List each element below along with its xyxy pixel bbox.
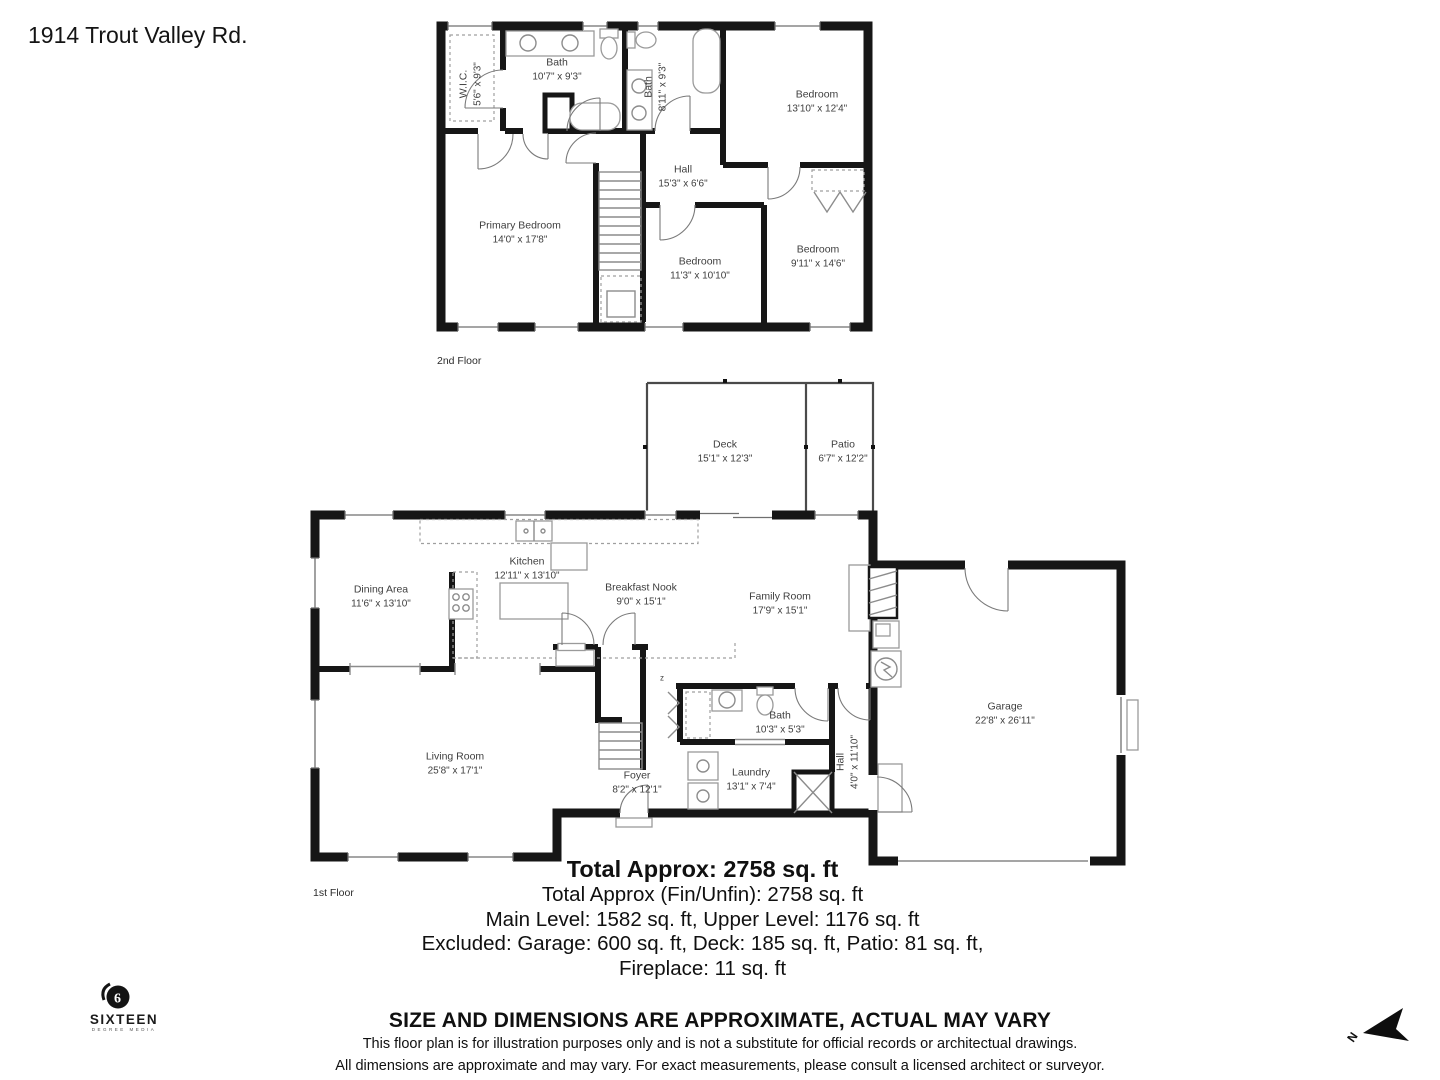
page-title: 1914 Trout Valley Rd.	[28, 22, 247, 49]
switch-symbol: z	[660, 674, 664, 683]
bath-laundry-fixtures	[668, 687, 902, 813]
room-label-dining: Dining Area11'6" x 13'10"	[351, 584, 411, 611]
room-label-wic: W.I.C.5'6" x 9'3"	[458, 62, 485, 106]
kitchen-island	[500, 583, 568, 619]
stove	[449, 589, 473, 619]
dryer	[688, 783, 718, 809]
summary-fin-unfin: Total Approx (Fin/Unfin): 2758 sq. ft	[280, 883, 1125, 908]
kitchen-fixtures	[420, 520, 735, 659]
logo-tagline: DEGREE MEDIA	[86, 1027, 162, 1033]
room-label-hall-upper: Hall15'3" x 6'6"	[658, 164, 707, 191]
disclaimer-headline: SIZE AND DIMENSIONS ARE APPROXIMATE, ACT…	[0, 1008, 1440, 1034]
garage-step	[878, 764, 902, 812]
room-label-kitchen: Kitchen12'11" x 13'10"	[494, 556, 559, 583]
room-label-bath-hall: Bath8'11" x 9'3"	[643, 63, 670, 112]
living-opening	[455, 663, 540, 675]
first-floor-plan	[311, 511, 1139, 866]
room-label-foyer: Foyer8'2" x 12'1"	[612, 770, 661, 797]
room-label-laundry: Laundry13'1" x 7'4"	[726, 767, 775, 794]
room-label-garage: Garage22'8" x 26'11"	[975, 701, 1035, 728]
room-label-bedroom-3: Bedroom9'11" x 14'6"	[791, 244, 845, 271]
area-summary: Total Approx: 2758 sq. ft Total Approx (…	[280, 855, 1125, 981]
room-label-living-room: Living Room25'8" x 17'1"	[426, 751, 484, 778]
front-door-opening	[620, 809, 648, 818]
disclaimer-line-1: This floor plan is for illustration purp…	[0, 1034, 1440, 1056]
summary-excluded: Excluded: Garage: 600 sq. ft, Deck: 185 …	[280, 932, 1125, 957]
summary-fireplace: Fireplace: 11 sq. ft	[280, 957, 1125, 982]
room-label-family-room: Family Room17'9" x 15'1"	[749, 591, 811, 618]
room-label-hall-main: Hall4'0" x 11'10"	[835, 735, 862, 789]
dining-opening	[350, 663, 420, 675]
second-floor-tag: 2nd Floor	[437, 355, 481, 367]
staircase-main	[599, 723, 642, 769]
room-label-primary-bedroom: Primary Bedroom14'0" x 17'8"	[479, 220, 561, 247]
family-room-builtin	[849, 565, 870, 631]
room-label-patio: Patio6'7" x 12'2"	[818, 439, 867, 466]
room-label-bedroom-1: Bedroom13'10" x 12'4"	[787, 89, 847, 116]
front-step	[616, 818, 652, 827]
summary-levels: Main Level: 1582 sq. ft, Upper Level: 11…	[280, 908, 1125, 933]
staircase-up	[599, 172, 641, 270]
disclaimer-line-2: All dimensions are approximate and may v…	[0, 1056, 1440, 1078]
logo-name: SIXTEEN	[86, 1013, 162, 1027]
washer	[688, 752, 718, 780]
room-label-breakfast-nook: Breakfast Nook9'0" x 15'1"	[605, 582, 677, 609]
bedroom-closet	[812, 170, 866, 212]
sixteen-logo: SIXTEEN DEGREE MEDIA	[86, 979, 162, 1033]
floor-plan-page: N 6 1914 Trout Valley Rd. W.I.C.5'6" x 9…	[0, 0, 1440, 1080]
summary-total: Total Approx: 2758 sq. ft	[280, 855, 1125, 883]
coat-closet	[556, 650, 594, 666]
fireplace-utilities	[849, 565, 901, 687]
garage-side-step	[1127, 700, 1138, 750]
disclaimer: SIZE AND DIMENSIONS ARE APPROXIMATE, ACT…	[0, 1008, 1440, 1077]
room-label-bedroom-2: Bedroom11'3" x 10'10"	[670, 256, 730, 283]
room-label-deck: Deck15'1" x 12'3"	[698, 439, 753, 466]
room-label-bath-primary: Bath10'7" x 9'3"	[532, 57, 581, 84]
room-label-bath-main: Bath10'3" x 5'3"	[755, 710, 804, 737]
